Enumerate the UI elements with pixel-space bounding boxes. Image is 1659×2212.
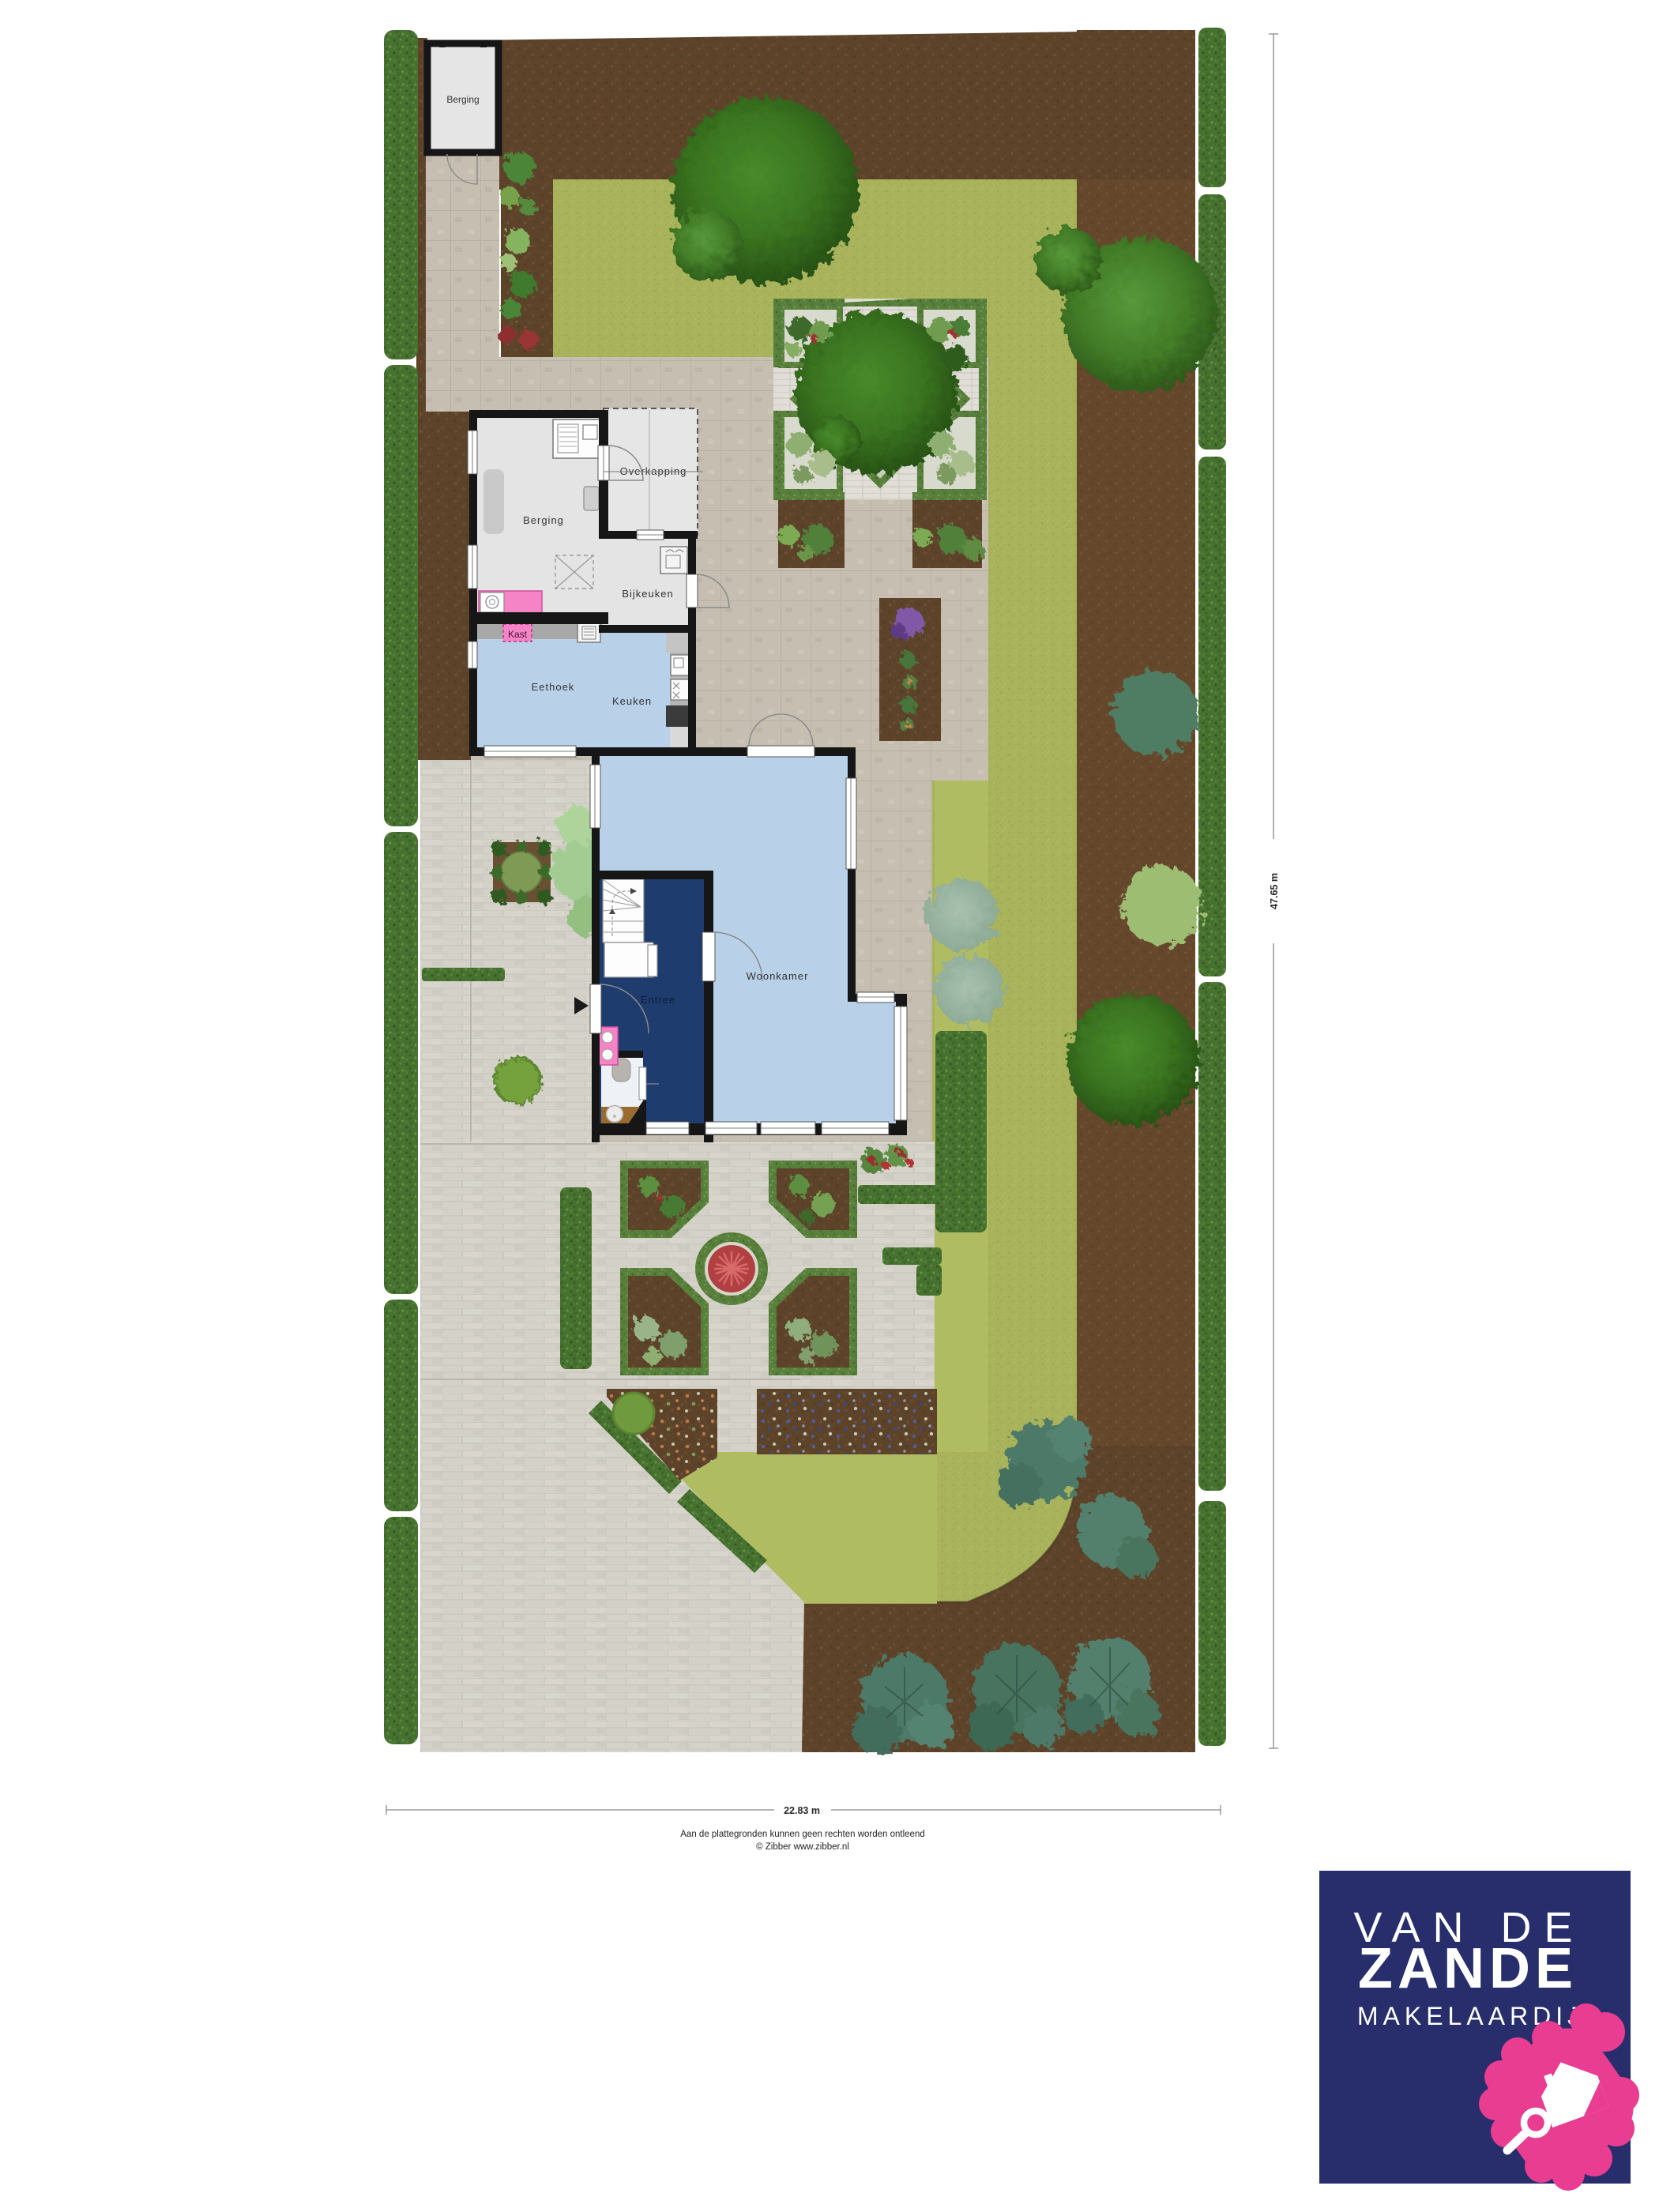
svg-text:Keuken: Keuken [612, 695, 652, 707]
svg-text:Aan de plattegronden kunnen ge: Aan de plattegronden kunnen geen rechten… [680, 1830, 924, 1839]
svg-text:22.83 m: 22.83 m [784, 1805, 820, 1816]
svg-text:Bijkeuken: Bijkeuken [622, 588, 673, 600]
svg-text:Woonkamer: Woonkamer [747, 970, 809, 982]
svg-text:Berging: Berging [446, 94, 479, 105]
svg-text:Kast: Kast [508, 629, 528, 640]
svg-text:ZANDE: ZANDE [1358, 1937, 1578, 2000]
svg-text:Berging: Berging [523, 514, 564, 526]
svg-text:© Zibber www.zibber.nl: © Zibber www.zibber.nl [756, 1842, 849, 1852]
svg-text:47.65 m: 47.65 m [1269, 873, 1280, 909]
svg-text:Eethoek: Eethoek [532, 681, 575, 693]
svg-text:Entree: Entree [641, 994, 675, 1006]
